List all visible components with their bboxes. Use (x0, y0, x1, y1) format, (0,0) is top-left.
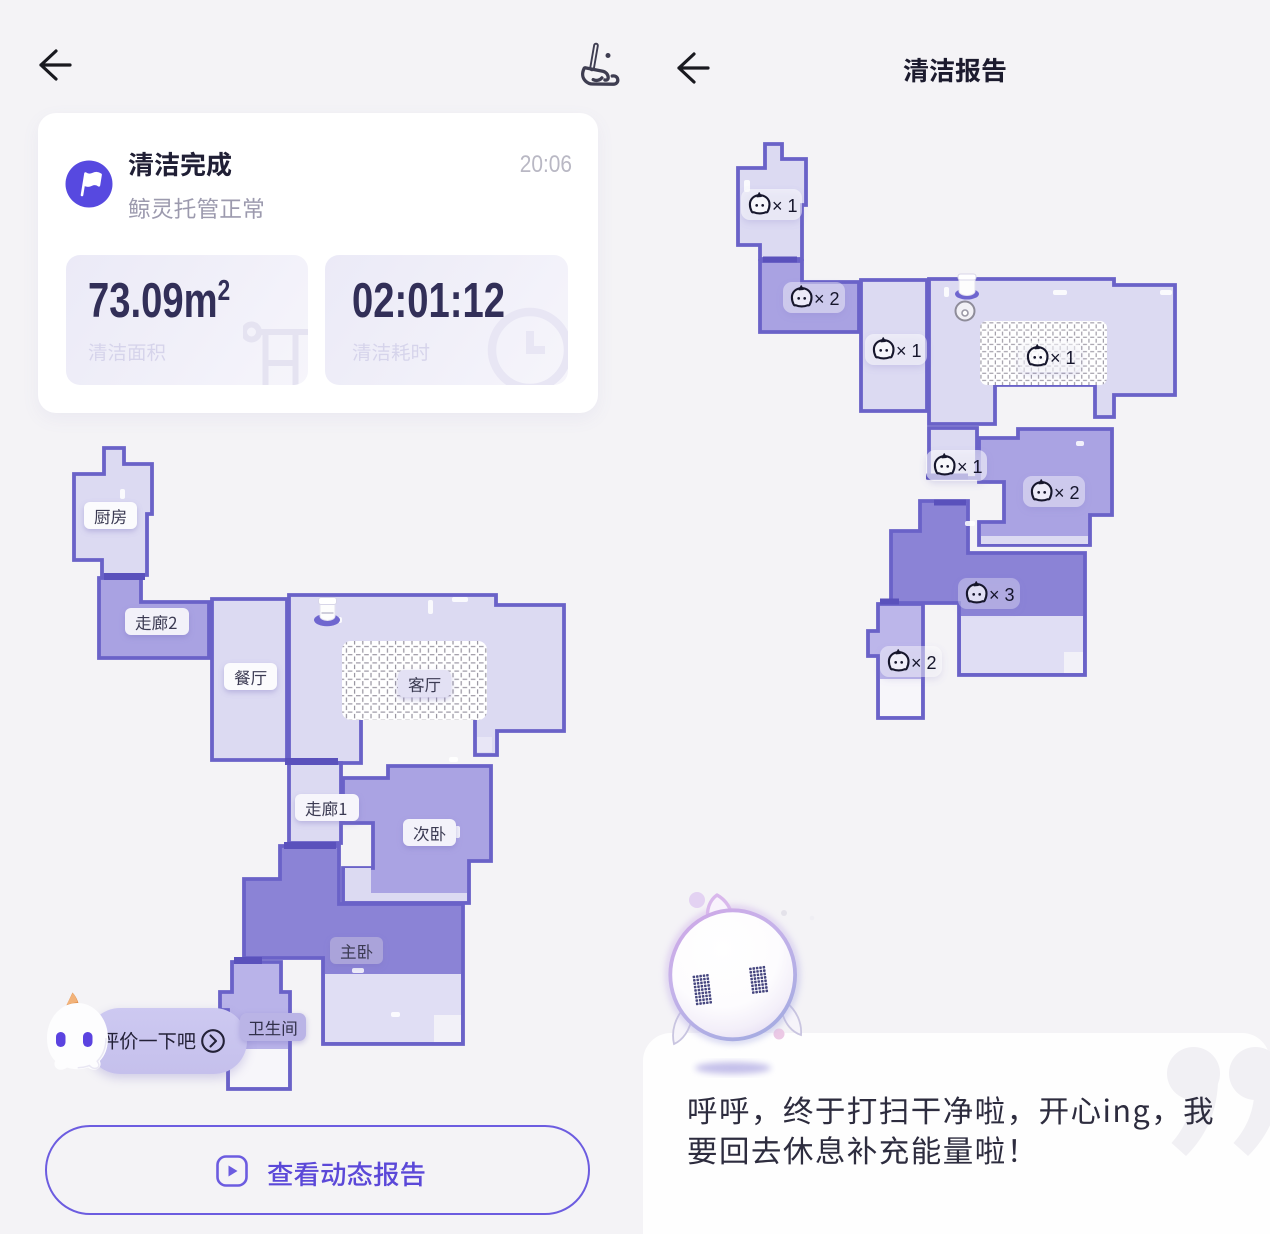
svg-text:× 2: × 2 (814, 289, 840, 309)
svg-text:× 1: × 1 (1050, 348, 1076, 368)
svg-text:× 3: × 3 (989, 585, 1015, 605)
svg-text:× 2: × 2 (911, 653, 937, 673)
svg-text:× 2: × 2 (1054, 483, 1080, 503)
svg-text:× 1: × 1 (957, 457, 983, 477)
svg-text:× 1: × 1 (896, 341, 922, 361)
svg-text:× 1: × 1 (772, 196, 798, 216)
